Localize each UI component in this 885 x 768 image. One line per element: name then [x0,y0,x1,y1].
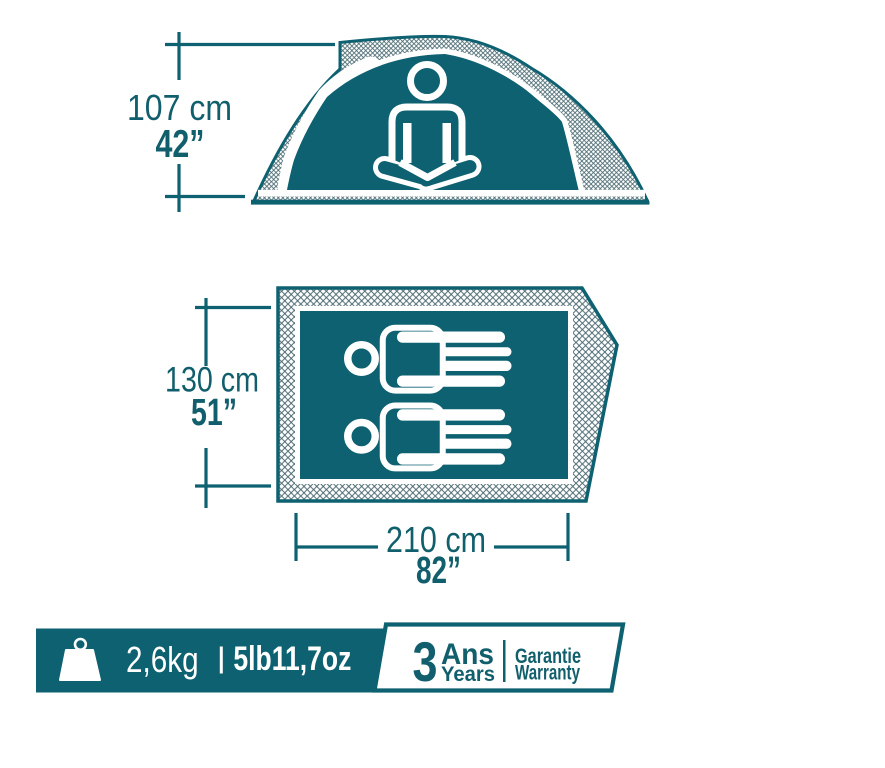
svg-text:3: 3 [413,630,438,693]
svg-text:42”: 42” [156,123,205,166]
svg-text:Warranty: Warranty [515,662,580,685]
svg-text:2,6kg: 2,6kg [126,639,199,680]
svg-text:5lb11,7oz: 5lb11,7oz [233,640,351,678]
svg-text:107 cm: 107 cm [127,87,232,128]
svg-text:Years: Years [441,663,495,686]
svg-text:51”: 51” [191,392,237,434]
svg-text:82”: 82” [416,550,461,592]
